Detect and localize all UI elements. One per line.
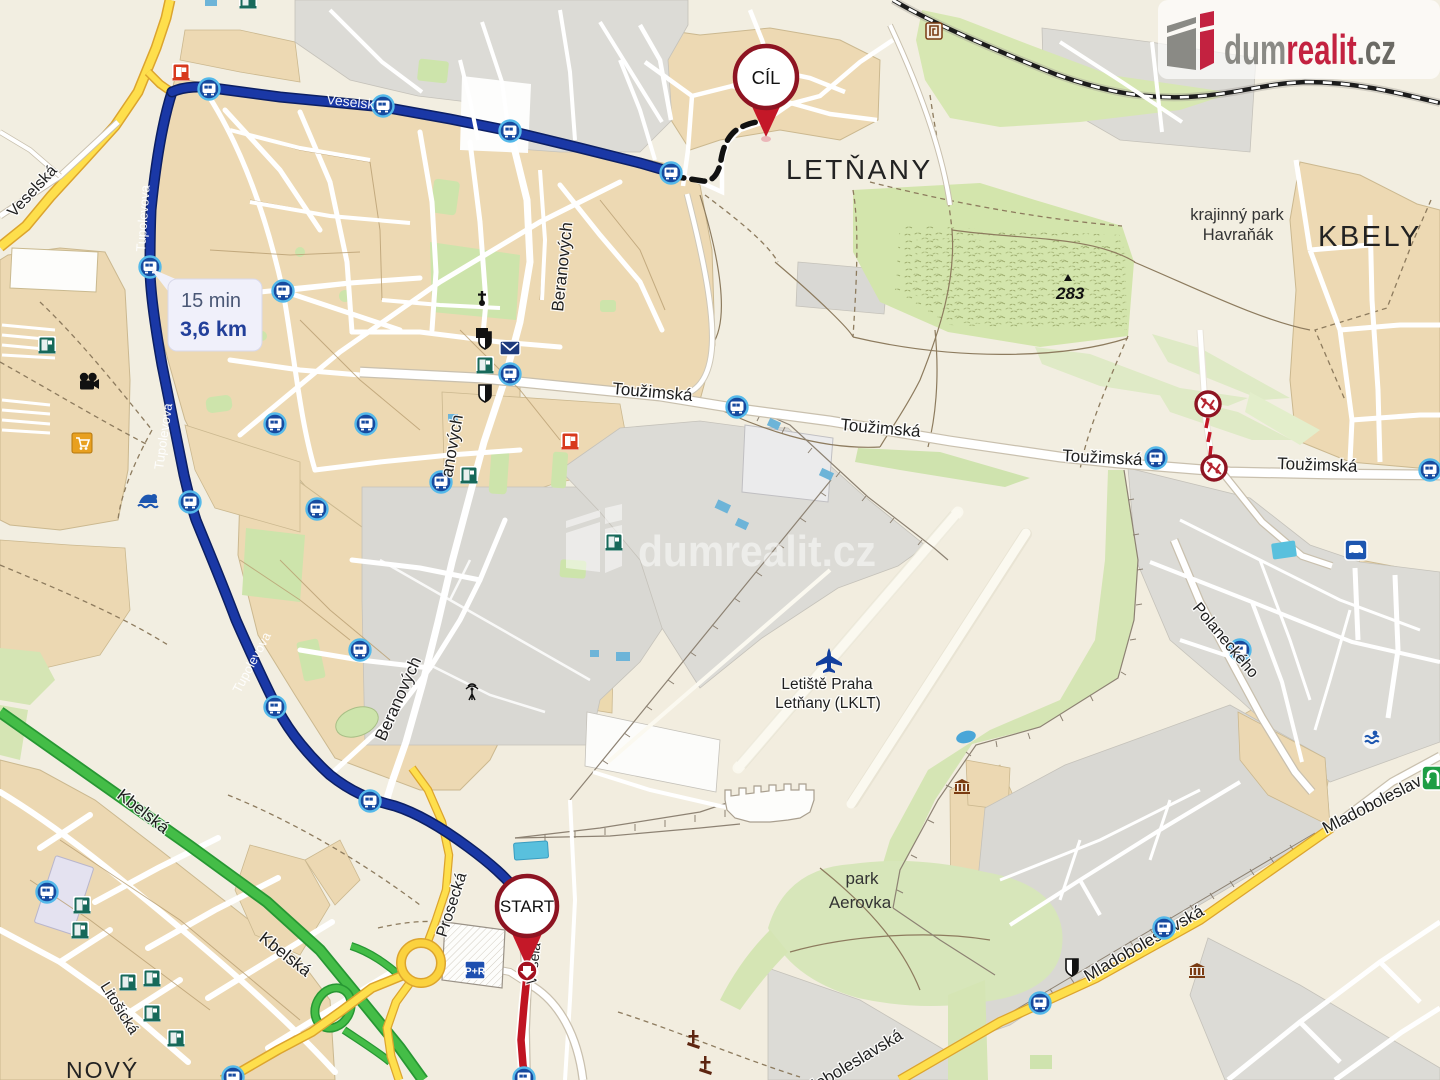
svg-text:15 min: 15 min — [181, 290, 241, 312]
svg-text:KBELY: KBELY — [1318, 221, 1422, 253]
svg-text:CÍL: CÍL — [752, 67, 781, 88]
svg-text:P+R: P+R — [465, 966, 486, 978]
svg-text:krajinný park: krajinný park — [1190, 206, 1284, 224]
svg-text:NOVÝ: NOVÝ — [66, 1057, 139, 1080]
svg-text:Toužimská: Toužimská — [1277, 454, 1358, 476]
svg-text:Havraňák: Havraňák — [1203, 226, 1274, 244]
svg-text:Letňany (LKLT): Letňany (LKLT) — [775, 695, 881, 712]
svg-text:dumrealit.cz: dumrealit.cz — [1224, 26, 1396, 73]
svg-text:Aerovka: Aerovka — [829, 893, 892, 912]
svg-text:3,6 km: 3,6 km — [180, 317, 247, 341]
svg-text:dumrealit.cz: dumrealit.cz — [638, 527, 876, 576]
svg-text:283: 283 — [1055, 284, 1085, 303]
svg-text:Letiště Praha: Letiště Praha — [781, 676, 873, 693]
svg-text:park: park — [845, 869, 879, 888]
svg-text:START: START — [500, 897, 554, 916]
svg-text:LETŇANY: LETŇANY — [786, 154, 933, 185]
